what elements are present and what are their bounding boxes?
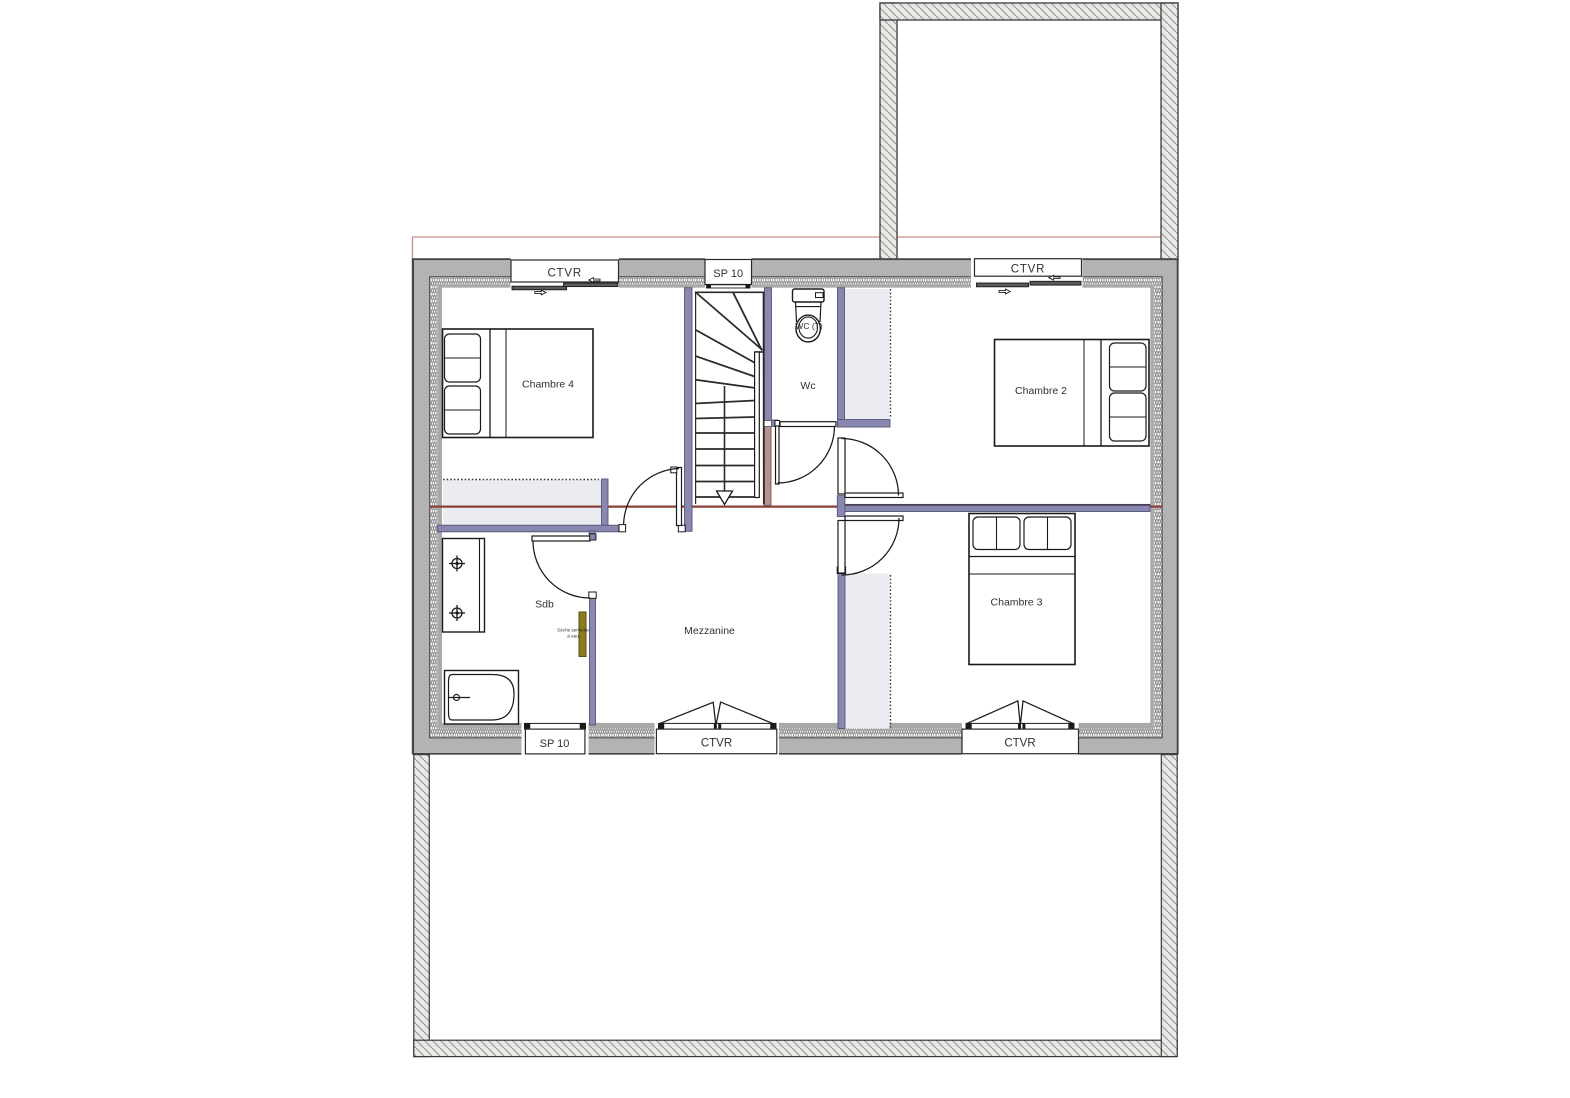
svg-text:Chambre 3: Chambre 3: [991, 597, 1043, 609]
svg-text:à eau: à eau: [567, 634, 579, 639]
svg-text:Sdb: Sdb: [535, 599, 554, 611]
svg-text:SP 10: SP 10: [540, 738, 570, 750]
svg-text:Wc: Wc: [800, 380, 815, 392]
svg-text:Sèche serviette: Sèche serviette: [557, 628, 589, 633]
svg-text:CTVR: CTVR: [701, 738, 732, 750]
svg-text:Chambre 4: Chambre 4: [522, 379, 574, 391]
svg-text:Mezzanine: Mezzanine: [684, 625, 735, 637]
svg-text:WC (T): WC (T): [795, 321, 823, 331]
svg-text:SP 10: SP 10: [713, 268, 743, 280]
svg-text:CTVR: CTVR: [547, 268, 582, 280]
svg-text:CTVR: CTVR: [1011, 264, 1046, 276]
svg-text:CTVR: CTVR: [1004, 738, 1035, 750]
svg-text:Chambre 2: Chambre 2: [1015, 385, 1067, 397]
